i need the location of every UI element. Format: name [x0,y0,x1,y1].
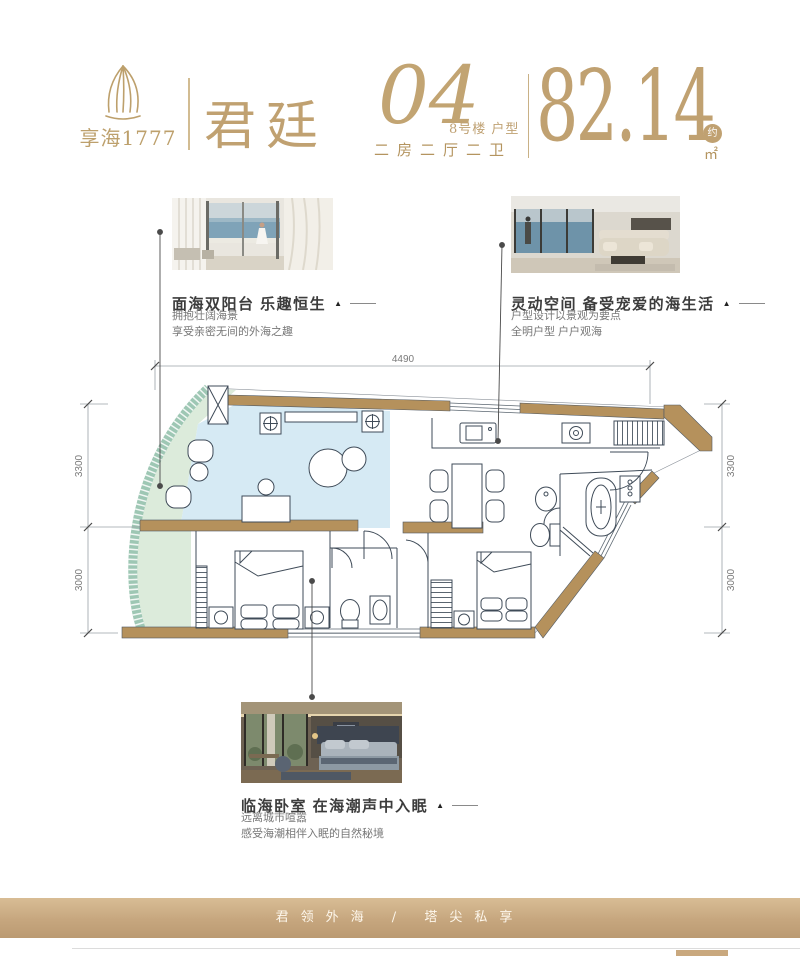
area-value: 82.14 [536,58,713,156]
dim-left-lower: 3000 [74,568,85,591]
brochure-page: 享海1777 君廷 04 8号楼 户型 二房二厅二卫 82.14 约 ㎡ 面海双… [0,0,800,956]
sail-logo-icon [100,64,146,122]
living-room-photo [511,196,680,273]
caption-marker-triangle: ▲ [334,300,342,308]
dim-left-upper: 3300 [74,454,85,477]
feature-subtext-2: 户型设计以景观为要点 全明户型 户户观海 [511,308,621,340]
caption-marker-triangle: ▲ [436,802,444,810]
approx-badge: 约 [703,124,722,143]
slogan-band: 君领外海 / 塔尖私享 [0,898,800,938]
area-unit: ㎡ [704,144,718,164]
dim-right-upper: 3300 [726,454,737,477]
caption-marker-line [452,805,478,806]
logo-divider [188,78,190,150]
unit-layout-label: 二房二厅二卫 [374,139,512,160]
footer-chip [676,950,728,956]
product-name: 君廷 [204,84,328,159]
balcony-photo [172,198,333,270]
caption-marker-line [350,303,376,304]
caption-marker-triangle: ▲ [723,300,731,308]
bedroom-photo [241,702,402,783]
feature-subtext-3: 远离城市喧嚣 感受海潮相伴入眠的自然秘境 [241,810,384,842]
header-divider [528,74,529,158]
caption-marker-line [739,303,765,304]
brand-logo-text: 享海1777 [70,122,186,151]
feature-subtext-1: 拥抱壮阔海景 享受亲密无间的外海之趣 [172,308,293,340]
footer-divider [72,948,800,949]
dim-top: 4490 [392,354,415,365]
floorplan-drawing: 4490 3300 3000 3300 3000 [60,350,770,700]
dim-right-lower: 3000 [726,568,737,591]
unit-building-label: 8号楼 户型 [449,118,519,137]
